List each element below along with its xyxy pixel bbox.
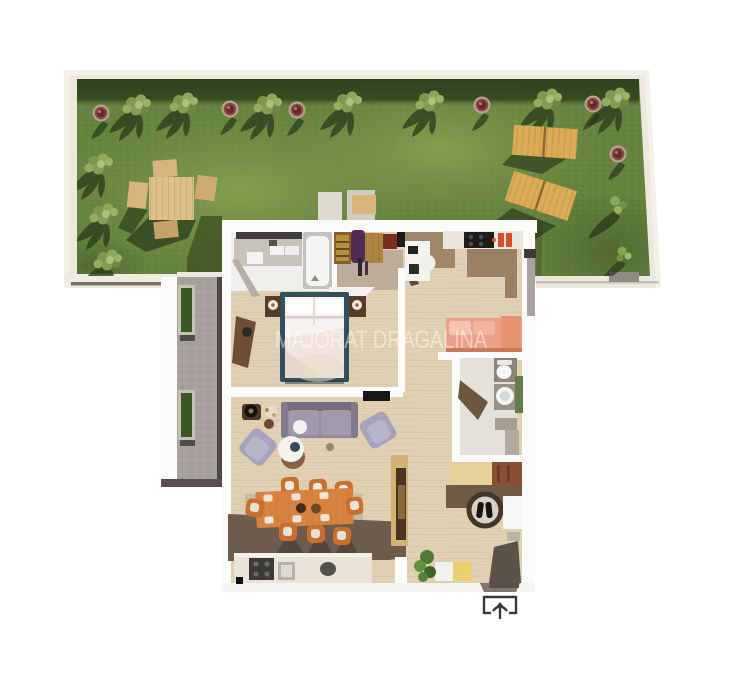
svg-text:MAJORAT DRAGALINA: MAJORAT DRAGALINA [275,326,487,354]
